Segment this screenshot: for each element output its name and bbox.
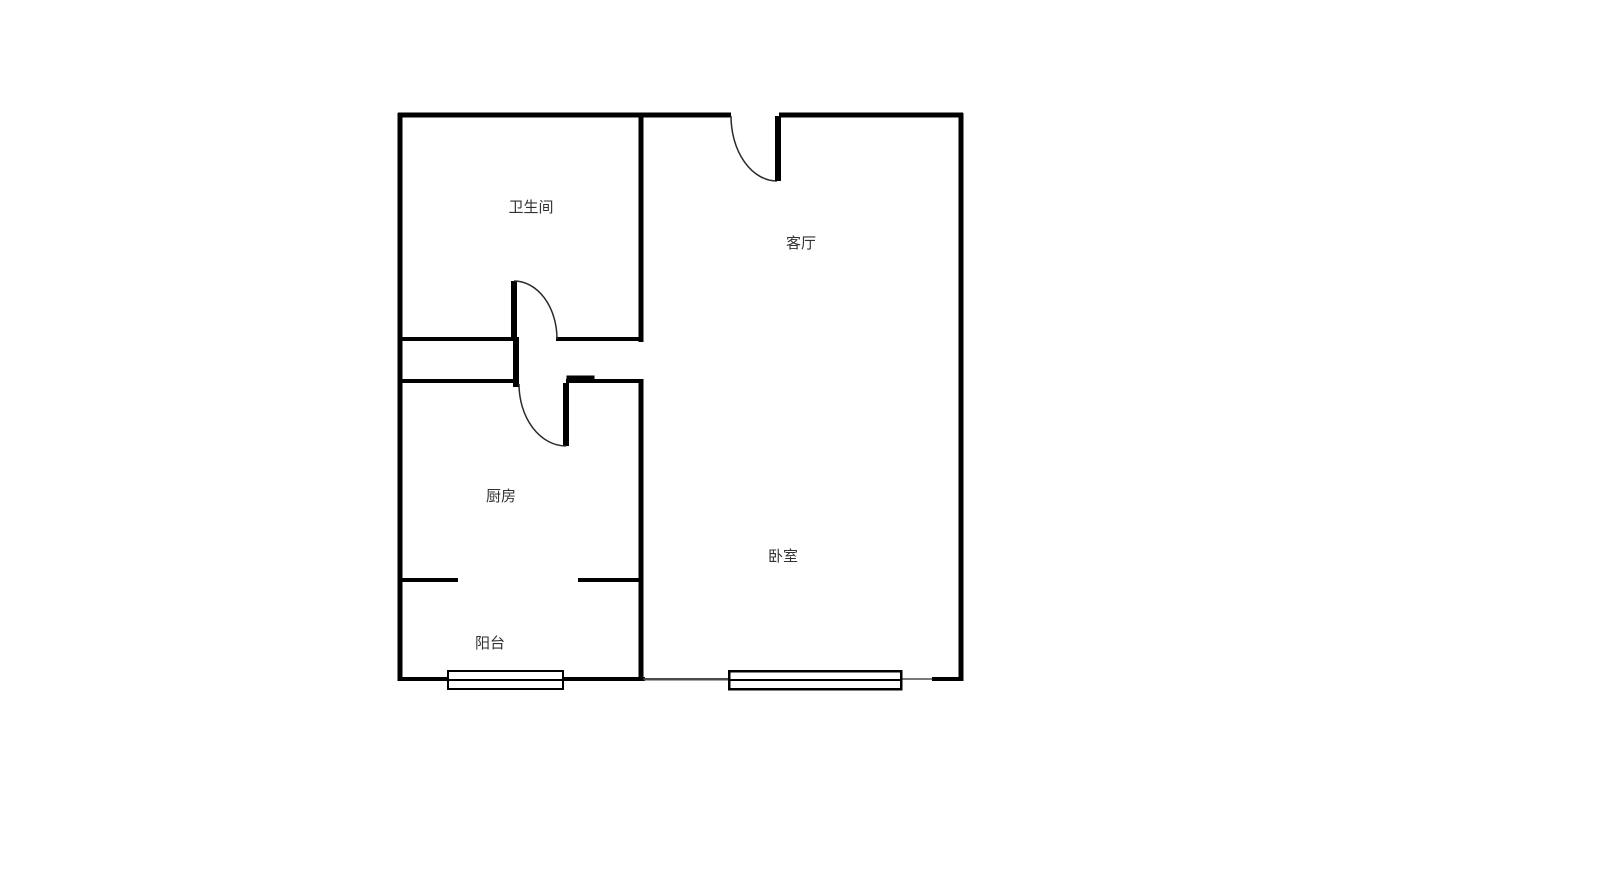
- bathroom-door-arc: [514, 281, 557, 339]
- living-room-label: 客厅: [786, 235, 816, 252]
- kitchen-door-arc: [519, 384, 566, 446]
- balcony-window: [448, 671, 563, 689]
- kitchen-door: [519, 383, 569, 446]
- floorplan-page: 卫生间 客厅 厨房 卧室 阳台: [0, 0, 1598, 880]
- hallway-door-stub-wall: [513, 337, 519, 387]
- balcony-label: 阳台: [475, 635, 505, 652]
- entry-door-leaf: [775, 116, 781, 181]
- bedroom-label: 卧室: [768, 548, 798, 565]
- entry-door: [731, 116, 781, 181]
- bathroom-door-leaf: [511, 281, 517, 339]
- bathroom-door: [511, 281, 557, 339]
- kitchen-door-leaf: [563, 383, 569, 446]
- bathroom-label: 卫生间: [508, 199, 553, 216]
- kitchen-door-jamb-tick: [567, 376, 594, 382]
- kitchen-label: 厨房: [486, 488, 516, 505]
- bedroom-window: [729, 671, 901, 689]
- entry-door-arc: [731, 116, 777, 181]
- floorplan-canvas: 卫生间 客厅 厨房 卧室 阳台: [0, 0, 1598, 880]
